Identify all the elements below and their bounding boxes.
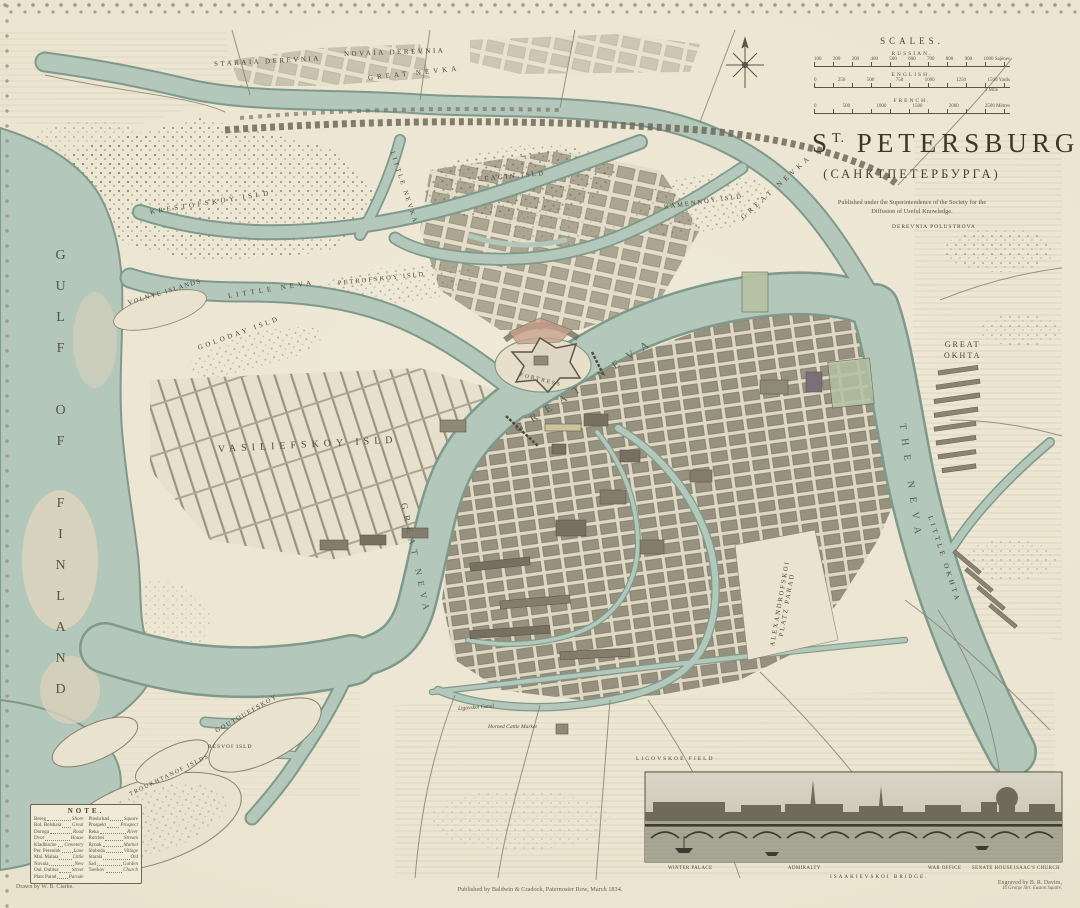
label-cattle-market: Horned Cattle Market (488, 724, 537, 730)
cattle-market-square (556, 724, 568, 734)
perforation-top (0, 1, 1080, 17)
tauride-garden (828, 358, 875, 408)
note-row: TserkovChurch (89, 868, 139, 874)
panorama-caption-senate: SENATE HOUSE (972, 866, 1013, 871)
note-heading: NOTE. (34, 807, 138, 815)
label-gulf-of-finland: GULF OF FINLAND (52, 248, 68, 648)
map-title: ST. PETERSBURG, (812, 128, 1012, 159)
note-column-right: PloshchadSquareProspektProspectRekaRiver… (89, 817, 139, 881)
panorama-caption-isaacs-church: ISAAC'S CHURCH (1014, 866, 1060, 871)
credit-engraved-by: Engraved by B. R. Davies, 16 George Strt… (952, 880, 1062, 891)
panorama-caption-admiralty: ADMIRALTY (788, 866, 821, 871)
note-row: Plats ParadParade (34, 875, 84, 881)
note-legend: NOTE. BeregShoreBol. BolshaiaGreatDoroga… (30, 804, 142, 884)
admiralty-building (545, 424, 581, 431)
scale-bar (814, 109, 1010, 114)
scales-heading: SCALES. (812, 36, 1012, 46)
panorama-caption-war-office: WAR OFFICE (928, 866, 961, 871)
credit-imprint: Published by Baldwin & Cradock, Paternos… (0, 886, 1080, 893)
scale-french: FRENCH. 05001000150020002500 Mètres (812, 98, 1012, 114)
scale-english: ENGLISH. 0250500750100012501500 Yards 1 … (812, 72, 1012, 93)
scale-bar (814, 62, 1010, 67)
summer-garden (742, 272, 768, 312)
map-sheet: SCALES. RUSSIAN. 10020030040050060070080… (0, 0, 1080, 908)
panorama-inset (645, 772, 1062, 862)
scale-russian: RUSSIAN. 1002003004005006007008009001000… (812, 51, 1012, 67)
compass-star-icon (726, 38, 764, 88)
label-ligovskoe-field: LIGOVSKOE FIELD (636, 756, 714, 762)
note-column-left: BeregShoreBol. BolshaiaGreatDorogaRoadDv… (34, 817, 84, 881)
taurida-block (806, 372, 822, 392)
label-derevnia-polustrova: DEREVNIA POLUSTROVA (892, 224, 976, 230)
publisher-note: Published under the Superintendence of t… (812, 198, 1012, 216)
label-resvoi-island: RÉSVOI ISLD (208, 744, 252, 750)
panorama-caption-winter-palace: WINTER PALACE (668, 866, 713, 871)
label-great-okhta: GREAT OKHTA (944, 340, 981, 360)
perforation-left (2, 0, 14, 908)
scale-mile-label: 1 Mile (812, 88, 998, 93)
map-subtitle-cyrillic: (САНКТПЕТЕРБУРГА) (812, 167, 1012, 182)
title-block: SCALES. RUSSIAN. 10020030040050060070080… (812, 36, 1012, 216)
winter-palace-block (584, 414, 608, 426)
panorama-caption-bridge: ISAAKIEVSKOI BRIDGE. (830, 874, 929, 880)
